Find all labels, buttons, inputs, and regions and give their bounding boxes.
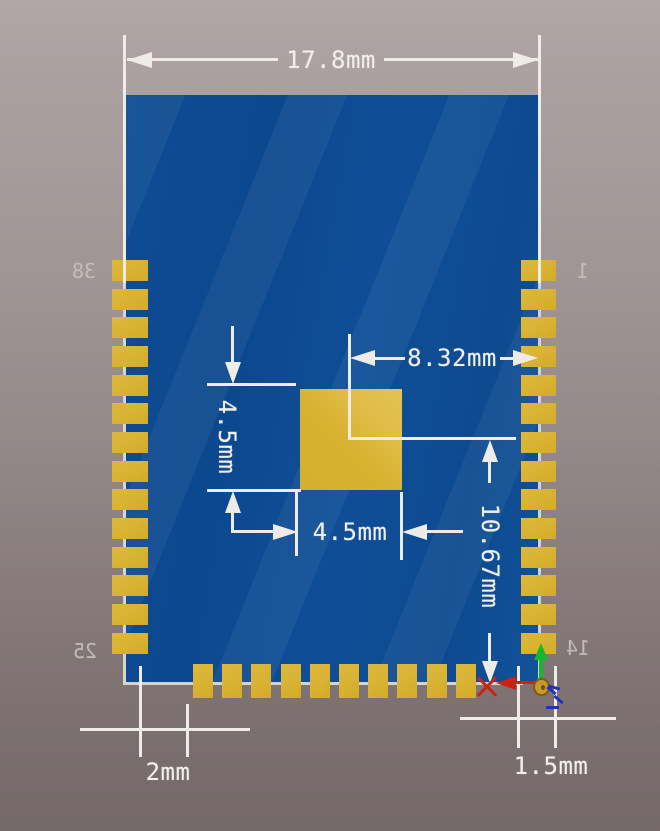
smd-pad-bottom-5 <box>310 664 330 698</box>
smd-pad-bottom-9 <box>427 664 447 698</box>
smd-pad-bottom-2 <box>222 664 242 698</box>
dim-width-ext-left <box>123 35 126 283</box>
dim-45v-label: 4.5mm <box>215 400 239 475</box>
origin-pad-hole <box>541 685 545 690</box>
dim-2mm-label: 2mm <box>146 760 191 784</box>
footprint-drawing: 17.8mm 8.32mm 4.5mm 4.5mm 10.67mm 2mm 1.… <box>0 0 660 831</box>
smd-pad-bottom-1 <box>193 664 213 698</box>
smd-pad-bottom-7 <box>368 664 388 698</box>
dim-width-arrow-left-icon <box>127 52 152 68</box>
dim-45v-ext-top <box>207 383 296 386</box>
pin-label-14: 14 <box>566 638 590 658</box>
dim-width-ext-right <box>538 35 541 283</box>
smd-pad-bottom-3 <box>251 664 271 698</box>
dim-45h-arrow-right-icon <box>273 524 298 540</box>
dim-1067-shaft-top <box>488 461 491 483</box>
dim-832-arrow-left-icon <box>350 350 375 366</box>
dim-1067-shaft-bottom <box>488 633 491 661</box>
dim-45v-arrow-down-icon <box>225 362 241 384</box>
dim-45v-ext-bottom <box>207 489 301 492</box>
dim-45h-label: 4.5mm <box>313 520 388 544</box>
z-axis-dash-4 <box>546 706 559 709</box>
dim-45h-shaft-right <box>427 530 463 533</box>
smd-pad-bottom-8 <box>397 664 417 698</box>
dim-45h-shaft-left <box>233 530 274 533</box>
x-axis-arrow-icon <box>496 676 516 690</box>
dim-15mm-ext-left <box>517 666 520 748</box>
dim-832-label: 8.32mm <box>407 346 497 370</box>
dim-45v-arrow-up-icon <box>225 491 241 513</box>
dim-width-arrow-right-icon <box>513 52 538 68</box>
dim-2mm-line <box>80 728 250 731</box>
y-axis-arrow-icon <box>534 643 548 660</box>
dim-width-label: 17.8mm <box>286 48 376 72</box>
smd-pad-bottom-6 <box>339 664 359 698</box>
pin-label-38: 38 <box>72 261 96 281</box>
dim-832-line-right <box>500 357 514 360</box>
dim-45v-shaft-top <box>231 326 234 363</box>
dim-832-line-left <box>375 357 405 360</box>
smd-pad-bottom-10 <box>456 664 476 698</box>
dim-1067-label: 10.67mm <box>478 504 502 609</box>
pin-label-25: 25 <box>73 641 97 661</box>
smd-pad-bottom-4 <box>281 664 301 698</box>
dim-15mm-line <box>460 717 616 720</box>
dim-15mm-label: 1.5mm <box>514 754 589 778</box>
dim-2mm-ext-left <box>139 666 142 757</box>
dim-1067-arrow-up-icon <box>482 440 498 462</box>
dim-45h-arrow-left-icon <box>402 524 427 540</box>
pin-label-1: 1 <box>577 261 589 281</box>
dim-832-arrow-right-icon <box>513 350 538 366</box>
